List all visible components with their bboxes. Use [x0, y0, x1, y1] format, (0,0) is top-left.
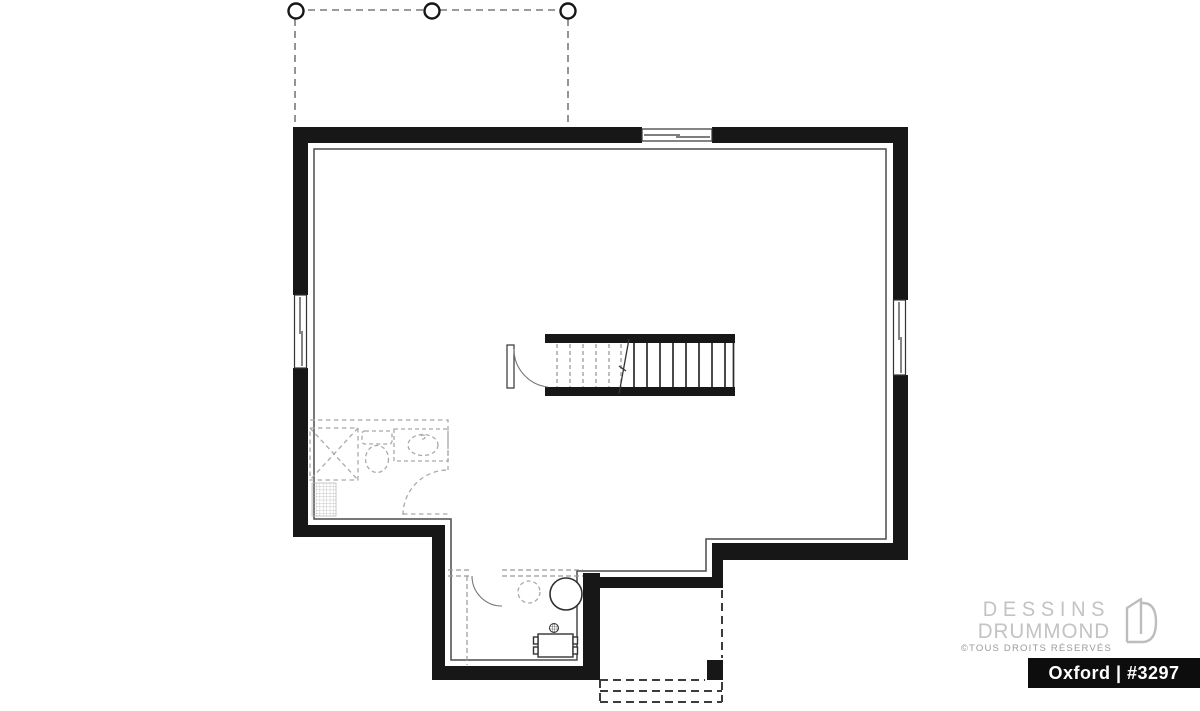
- drummond-door-d-icon: [1112, 596, 1158, 646]
- covered-porch-post: [707, 660, 723, 680]
- deck-dashed-outline: [295, 10, 568, 127]
- top-wall-window: [642, 129, 712, 141]
- right-wall-window: [894, 300, 906, 375]
- water-heater: [550, 578, 582, 610]
- plan-label: Oxford | #3297: [1048, 663, 1179, 684]
- column-post-icon: [289, 4, 304, 19]
- central-staircase: [507, 334, 735, 396]
- floor-drain: [550, 624, 559, 633]
- floor-plan-sheet: DESSINS DRUMMOND ©TOUS DROITS RÉSERVÉS O…: [0, 0, 1200, 711]
- logo-line1: DESSINS: [983, 598, 1110, 622]
- washer-appliance: [534, 634, 578, 657]
- branding: DESSINS DRUMMOND ©TOUS DROITS RÉSERVÉS O…: [980, 592, 1200, 711]
- porch-steps: [600, 590, 722, 702]
- tiled-floor-area: [312, 483, 336, 516]
- left-wall-window: [295, 295, 307, 368]
- vanity-sink: [394, 429, 448, 461]
- column-post-icon: [425, 4, 440, 19]
- deck-column-posts: [289, 4, 576, 19]
- future-round-fixture: [518, 581, 540, 603]
- logo-line2: DRUMMOND: [978, 620, 1110, 644]
- stair-entry-door: [507, 345, 548, 388]
- column-post-icon: [561, 4, 576, 19]
- plan-label-band: Oxford | #3297: [1028, 658, 1200, 688]
- laundry-door-swing: [472, 576, 502, 606]
- exterior-walls: [293, 127, 908, 680]
- corner-shower: [310, 428, 358, 480]
- copyright-text: ©TOUS DROITS RÉSERVÉS: [961, 643, 1112, 654]
- toilet: [362, 431, 392, 473]
